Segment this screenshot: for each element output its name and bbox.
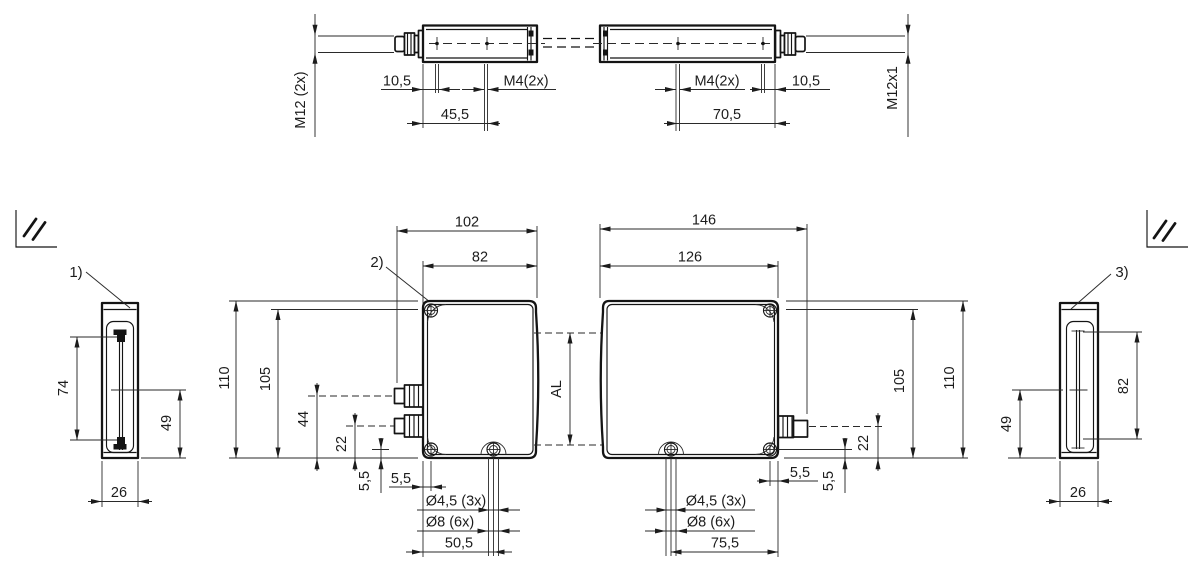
dim-82-top: 82 [472,250,488,266]
screw [487,443,500,456]
dim-al: AL [549,380,565,398]
dim-22-left: 22 [334,436,350,452]
dim-26-right: 26 [1070,485,1086,501]
cable-gland-lower [395,415,424,437]
cable-gland-upper [395,385,424,407]
side-view-left: 1) 74 49 26 [56,264,186,507]
dim-70-5: 70,5 [713,107,741,123]
dim-50-5: 50,5 [445,536,473,552]
m12-connector-left [395,31,424,58]
front-view-left: 102 82 2) [217,215,538,558]
dim-10-5-right: 10,5 [792,74,820,90]
dim-110-left: 110 [217,366,233,389]
dim-m4-left: M4(2x) [503,74,548,90]
dim-102: 102 [455,215,479,231]
housing-front-right [601,301,778,458]
screw [425,443,438,456]
dim-hole-large-left: Ø8 (6x) [426,515,474,531]
dim-5-5-v-left: 5,5 [357,471,373,491]
m12-connector-right [776,31,806,58]
dim-49-left: 49 [159,415,175,431]
dim-5-5-h-right: 5,5 [790,465,810,481]
dim-105-right: 105 [892,369,908,393]
dim-5-5-v-right: 5,5 [821,471,837,491]
dim-22-right: 22 [856,435,872,451]
dim-44: 44 [296,411,312,427]
housing-front-left [423,301,538,458]
dim-74: 74 [56,380,72,396]
screw [764,304,777,317]
side-view-right: 3) 82 49 26 [999,264,1142,507]
dim-146: 146 [692,213,716,229]
dim-126: 126 [678,250,702,266]
dim-m12-left: M12 (2x) [293,71,309,128]
label-1: 1) [69,264,82,281]
front-view-right: 146 126 [600,213,968,558]
dim-105-left: 105 [258,367,274,391]
label-2: 2) [370,254,383,271]
housing-top-left [423,26,545,63]
dim-hole-small-right: Ø4,5 (3x) [686,494,746,510]
technical-drawing-page: M12 (2x) [0,0,1200,577]
screw [425,304,438,317]
m12-plug [779,416,808,438]
dim-hole-large-right: Ø8 (6x) [687,515,735,531]
dim-hole-small-left: Ø4,5 (3x) [426,494,486,510]
dim-10-5-left: 10,5 [383,74,411,90]
dim-75-5: 75,5 [711,536,739,552]
housing-top-right [593,26,775,63]
dim-45-5: 45,5 [441,107,469,123]
dim-5-5-h-left: 5,5 [391,471,411,487]
dimension-drawing: M12 (2x) [0,0,1200,577]
screw [665,443,678,456]
dim-26-left: 26 [111,485,127,501]
dim-110-right: 110 [942,366,958,389]
dim-m4-right: M4(2x) [694,74,739,90]
dim-82-side: 82 [1116,378,1132,394]
dim-m12x1: M12x1 [885,66,901,110]
screw [764,443,777,456]
label-3: 3) [1115,264,1128,281]
top-view: M12 (2x) [293,14,908,137]
active-length-dim: AL [534,333,604,445]
optical-surface-symbol-left [16,210,57,247]
dim-49-right: 49 [999,416,1015,432]
optical-surface-symbol-right [1147,210,1188,247]
